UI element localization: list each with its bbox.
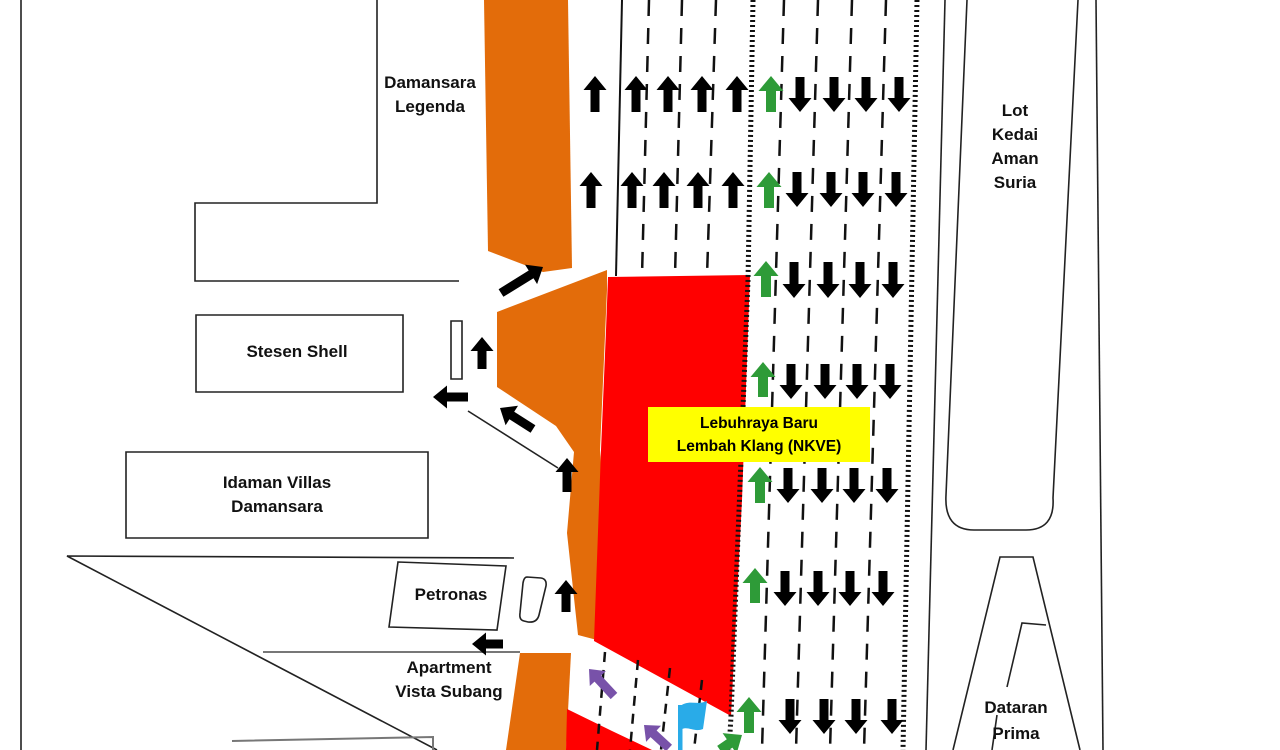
flagman-flag-icon (678, 701, 707, 750)
bottom-left-box (232, 737, 433, 750)
southbound-lane-flow-arrow (885, 172, 908, 207)
southbound-lane-flow-arrow (888, 77, 911, 112)
southbound-lane-flow-arrow (780, 364, 803, 399)
sb-lane-dash-2 (796, 0, 818, 750)
label-dataran-prima: Dataran Prima (984, 695, 1047, 747)
southbound-lane-flow-arrow (881, 699, 904, 734)
southbound-lane-flow-arrow (843, 468, 866, 503)
nb-lane-dash-3 (707, 0, 716, 276)
label-stesen-shell: Stesen Shell (246, 340, 347, 364)
lane-closure-red-main (594, 275, 750, 716)
northbound-lane-flow-arrow (722, 172, 745, 208)
gap-lane-dash-2 (630, 660, 638, 750)
traffic-island-south (520, 577, 546, 622)
dataran-prima-inner-line (1007, 623, 1046, 687)
northbound-lane-flow-arrow (584, 76, 607, 112)
sb-outer-barrier-line (903, 0, 917, 750)
northbound-lane-flow-arrow (653, 172, 676, 208)
nb-lane-dash-1 (642, 0, 649, 276)
label-idaman-villas-damansara: Idaman Villas Damansara (223, 471, 331, 519)
highway-name-label: Lebuhraya Baru Lembah Klang (NKVE) (648, 407, 870, 462)
northbound-lane-flow-arrow (726, 76, 749, 112)
contraflow-open-lane-arrow (737, 697, 762, 733)
contraflow-open-lane-arrow (759, 76, 784, 112)
traffic-island-north (451, 321, 462, 379)
northbound-lane-flow-arrow (691, 76, 714, 112)
diverted-traffic-arrow (644, 725, 672, 750)
service-road-right-line (1096, 0, 1103, 750)
northbound-lane-flow-arrow (687, 172, 710, 208)
diverted-traffic-arrow (589, 669, 617, 699)
diversion-route-arrow (500, 406, 535, 433)
southbound-lane-flow-arrow (823, 77, 846, 112)
lot-kedai-block (946, 0, 1078, 530)
contraflow-open-lane-arrow (743, 568, 768, 603)
diversion-route-arrow (433, 386, 468, 409)
southbound-lane-flow-arrow (846, 364, 869, 399)
label-petronas: Petronas (415, 583, 488, 607)
southbound-lane-flow-arrow (811, 468, 834, 503)
southbound-lane-flow-arrow (789, 77, 812, 112)
northbound-lane-flow-arrow (580, 172, 603, 208)
lane-closure-red-bottom (566, 709, 652, 750)
contraflow-open-lane-arrow (717, 733, 742, 750)
nb-edge-line (616, 0, 622, 276)
work-zone-buffer-bottom (506, 653, 571, 750)
southbound-lane-flow-arrow (855, 77, 878, 112)
label-damansara-legenda: Damansara Legenda (384, 71, 476, 119)
label-lot-kedai-aman-suria: Lot Kedai Aman Suria (991, 99, 1038, 195)
southbound-lane-flow-arrow (852, 172, 875, 207)
work-zone-buffer-top (484, 0, 572, 272)
diversion-route-arrow (499, 265, 543, 297)
northbound-lane-flow-arrow (657, 76, 680, 112)
southbound-lane-flow-arrow (879, 364, 902, 399)
southbound-lane-flow-arrow (777, 468, 800, 503)
sb-lane-dash-3 (830, 0, 852, 750)
southbound-lane-flow-arrow (814, 364, 837, 399)
southbound-lane-flow-arrow (774, 571, 797, 606)
southbound-lane-flow-arrow (786, 172, 809, 207)
northbound-lane-flow-arrow (625, 76, 648, 112)
southbound-lane-flow-arrow (783, 262, 806, 298)
southbound-lane-flow-arrow (872, 571, 895, 606)
sb-lane-dash-4 (864, 0, 886, 750)
diversion-route-arrow (471, 337, 494, 369)
southbound-lane-flow-arrow (839, 571, 862, 606)
southbound-lane-flow-arrow (807, 571, 830, 606)
label-apartment-vista-subang: Apartment Vista Subang (395, 656, 502, 704)
traffic-plan-diagram: Damansara Legenda Stesen Shell Idaman Vi… (0, 0, 1280, 750)
diagram-canvas (0, 0, 1280, 750)
service-road-left-line (926, 0, 945, 750)
work-zone-buffer-mid (497, 270, 607, 640)
southbound-lane-flow-arrow (849, 262, 872, 298)
damansara-legenda-boundary (195, 0, 459, 281)
nb-lane-dash-2 (675, 0, 682, 276)
northbound-lane-flow-arrow (621, 172, 644, 208)
southbound-lane-flow-arrow (817, 262, 840, 298)
southbound-lane-flow-arrow (876, 468, 899, 503)
southbound-lane-flow-arrow (820, 172, 843, 207)
southbound-lane-flow-arrow (882, 262, 905, 298)
